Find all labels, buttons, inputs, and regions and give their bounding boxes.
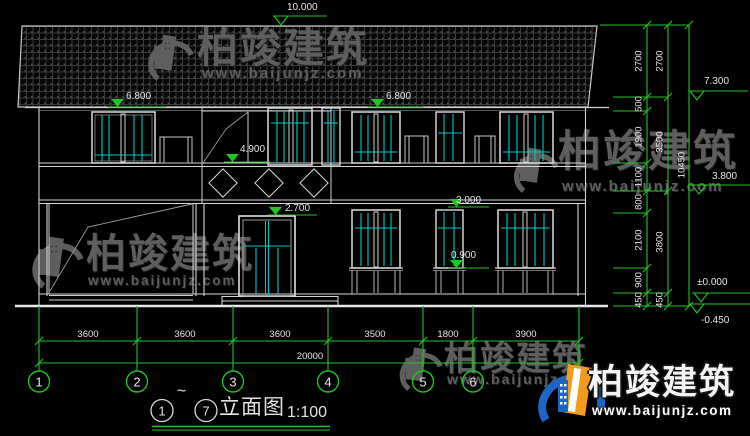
brand-logo: 柏竣建筑 www.baijunjz.com xyxy=(518,356,750,436)
dim-label: 1800 xyxy=(437,330,458,340)
dim-label: 2700 xyxy=(634,50,644,71)
elevation-label-ridge: 10.000 xyxy=(287,3,318,13)
elevation-label-eave-left: 6.800 xyxy=(126,92,151,102)
dim-label: 3600 xyxy=(269,330,290,340)
dim-label: 2100 xyxy=(634,229,644,250)
title-tilde: ~ xyxy=(177,384,186,400)
dim-label: 800 xyxy=(634,194,644,210)
title-circle-end: 7 xyxy=(202,405,209,418)
grid-bubble-label: 4 xyxy=(324,376,331,389)
elevation-label-window-head: 3.000 xyxy=(456,196,481,206)
elevation-label-below-ground: -0.450 xyxy=(701,316,729,326)
elevation-label-door-head: 2.700 xyxy=(285,204,310,214)
drawing-title: 立面图 xyxy=(219,397,285,418)
dim-label: 3900 xyxy=(515,330,536,340)
dim-label-right-total: 10450 xyxy=(677,152,687,178)
grid-bubble-label: 1 xyxy=(35,376,42,389)
dim-label: 1900 xyxy=(634,126,644,147)
elevation-label-second-floor: 3.800 xyxy=(712,172,737,182)
title-circle-start: 1 xyxy=(158,405,165,418)
dim-label: 1100 xyxy=(634,167,644,187)
dim-label-total: 20000 xyxy=(297,352,323,362)
dim-label: 3500 xyxy=(364,330,385,340)
elevation-label-right-eave: 7.300 xyxy=(704,77,729,87)
dim-label: 3600 xyxy=(174,330,195,340)
dim-label: 900 xyxy=(634,272,644,288)
dim-label: 3600 xyxy=(77,330,98,340)
dim-label: 500 xyxy=(634,96,644,112)
elevation-label-eave-right: 6.800 xyxy=(386,92,411,102)
grid-bubble-label: 3 xyxy=(229,376,236,389)
dim-label: 3500 xyxy=(655,131,665,152)
cad-elevation-drawing: 柏竣建筑 www.baijunjz.com 柏竣建筑 www.baijunjz.… xyxy=(0,0,750,436)
drawing-scale: 1:100 xyxy=(287,405,327,421)
grid-bubble-label: 5 xyxy=(419,376,426,389)
dim-label: 3800 xyxy=(655,231,665,252)
dim-label: 450 xyxy=(634,292,644,308)
grid-bubble-label: 6 xyxy=(469,376,476,389)
grid-bubble-label: 2 xyxy=(133,376,140,389)
dim-label: 2700 xyxy=(655,50,665,71)
elevation-label-ground: ±0.000 xyxy=(697,278,728,288)
brand-url: www.baijunjz.com xyxy=(592,403,733,418)
elevation-label-parapet: 4.900 xyxy=(240,145,265,155)
elevation-label-window-sill: 0.900 xyxy=(451,251,476,261)
brand-name: 柏竣建筑 xyxy=(588,365,736,400)
dim-label: 450 xyxy=(655,292,665,308)
